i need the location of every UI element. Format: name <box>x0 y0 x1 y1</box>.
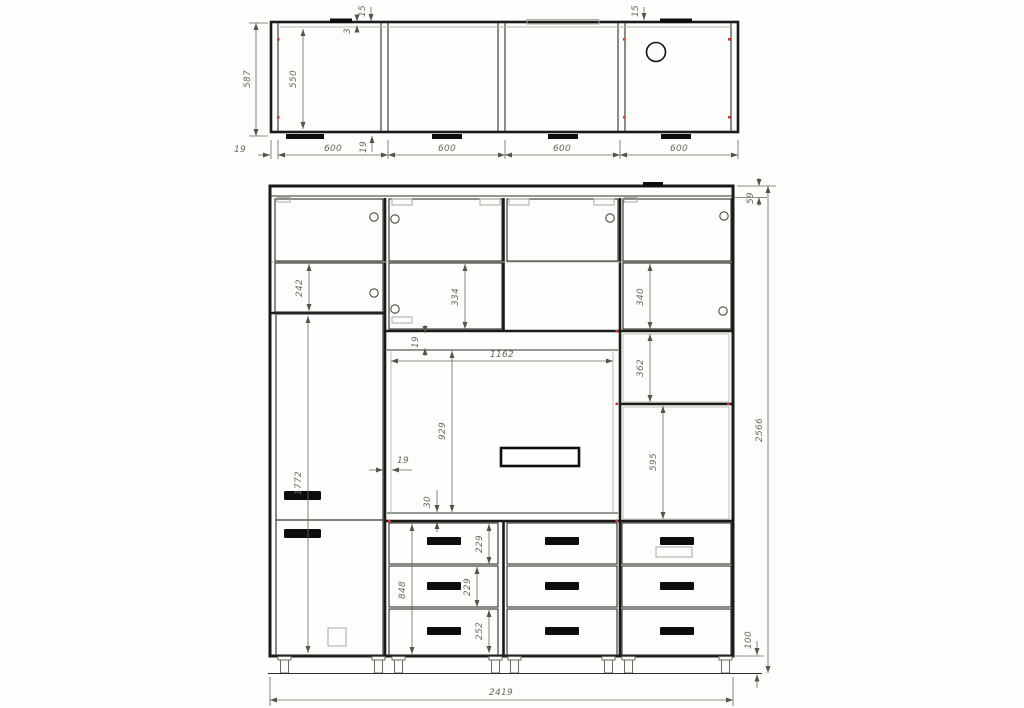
dim-label: 929 <box>438 422 448 440</box>
dim-label: 19 <box>359 141 369 153</box>
dim-label: 229 <box>463 578 473 596</box>
top-trim-block <box>643 182 663 187</box>
dim-label: 550 <box>289 70 299 88</box>
dim-label: 2419 <box>489 688 513 698</box>
dim-label: 15 <box>358 5 368 17</box>
dim-label: 595 <box>649 453 659 471</box>
drawer-handle <box>660 627 694 635</box>
dim-section3-label: 600 <box>553 144 571 154</box>
dim-label: 242 <box>295 279 305 297</box>
dim-label: 229 <box>475 535 485 553</box>
dim-label: 3 <box>343 28 353 34</box>
plan-handle-section1 <box>330 19 352 24</box>
dim-label: 587 <box>243 70 253 88</box>
dim-section4-label: 600 <box>670 144 688 154</box>
dim-label: 1162 <box>490 350 514 360</box>
dim-label: 848 <box>398 581 408 599</box>
drawer-handle <box>427 582 461 590</box>
drawer-handle <box>427 537 461 545</box>
dim-label: 15 <box>631 5 641 17</box>
dim-label: 19 <box>397 456 409 466</box>
dim-label: 362 <box>636 359 646 377</box>
drawer-handle <box>660 537 694 545</box>
drawer-handle <box>427 627 461 635</box>
furniture-technical-drawing: 587 550 15 3 15 19 <box>0 0 1024 708</box>
dim-section2-label: 600 <box>438 144 456 154</box>
drawer-handle <box>545 537 579 545</box>
drawer-handle <box>660 582 694 590</box>
dim-label: 2566 <box>755 418 765 442</box>
plan-handle-section4 <box>660 19 692 24</box>
dim-label: 30 <box>423 496 433 508</box>
dim-label: 340 <box>636 288 646 306</box>
drawing-page: 587 550 15 3 15 19 <box>0 0 1024 708</box>
dim-section1-label: 600 <box>324 144 342 154</box>
dim-label: 100 <box>744 631 754 649</box>
dim-label: 252 <box>475 622 485 640</box>
dim-wall-label: 19 <box>234 145 246 155</box>
drawer-handle <box>545 582 579 590</box>
niche-recess-handle <box>501 448 579 466</box>
wardrobe-handle <box>284 529 321 538</box>
drawer-handle <box>545 627 579 635</box>
dim-label: 59 <box>746 192 756 204</box>
dim-label: 19 <box>411 336 421 348</box>
dim-label: 1772 <box>294 471 304 495</box>
dim-label: 334 <box>451 288 461 306</box>
